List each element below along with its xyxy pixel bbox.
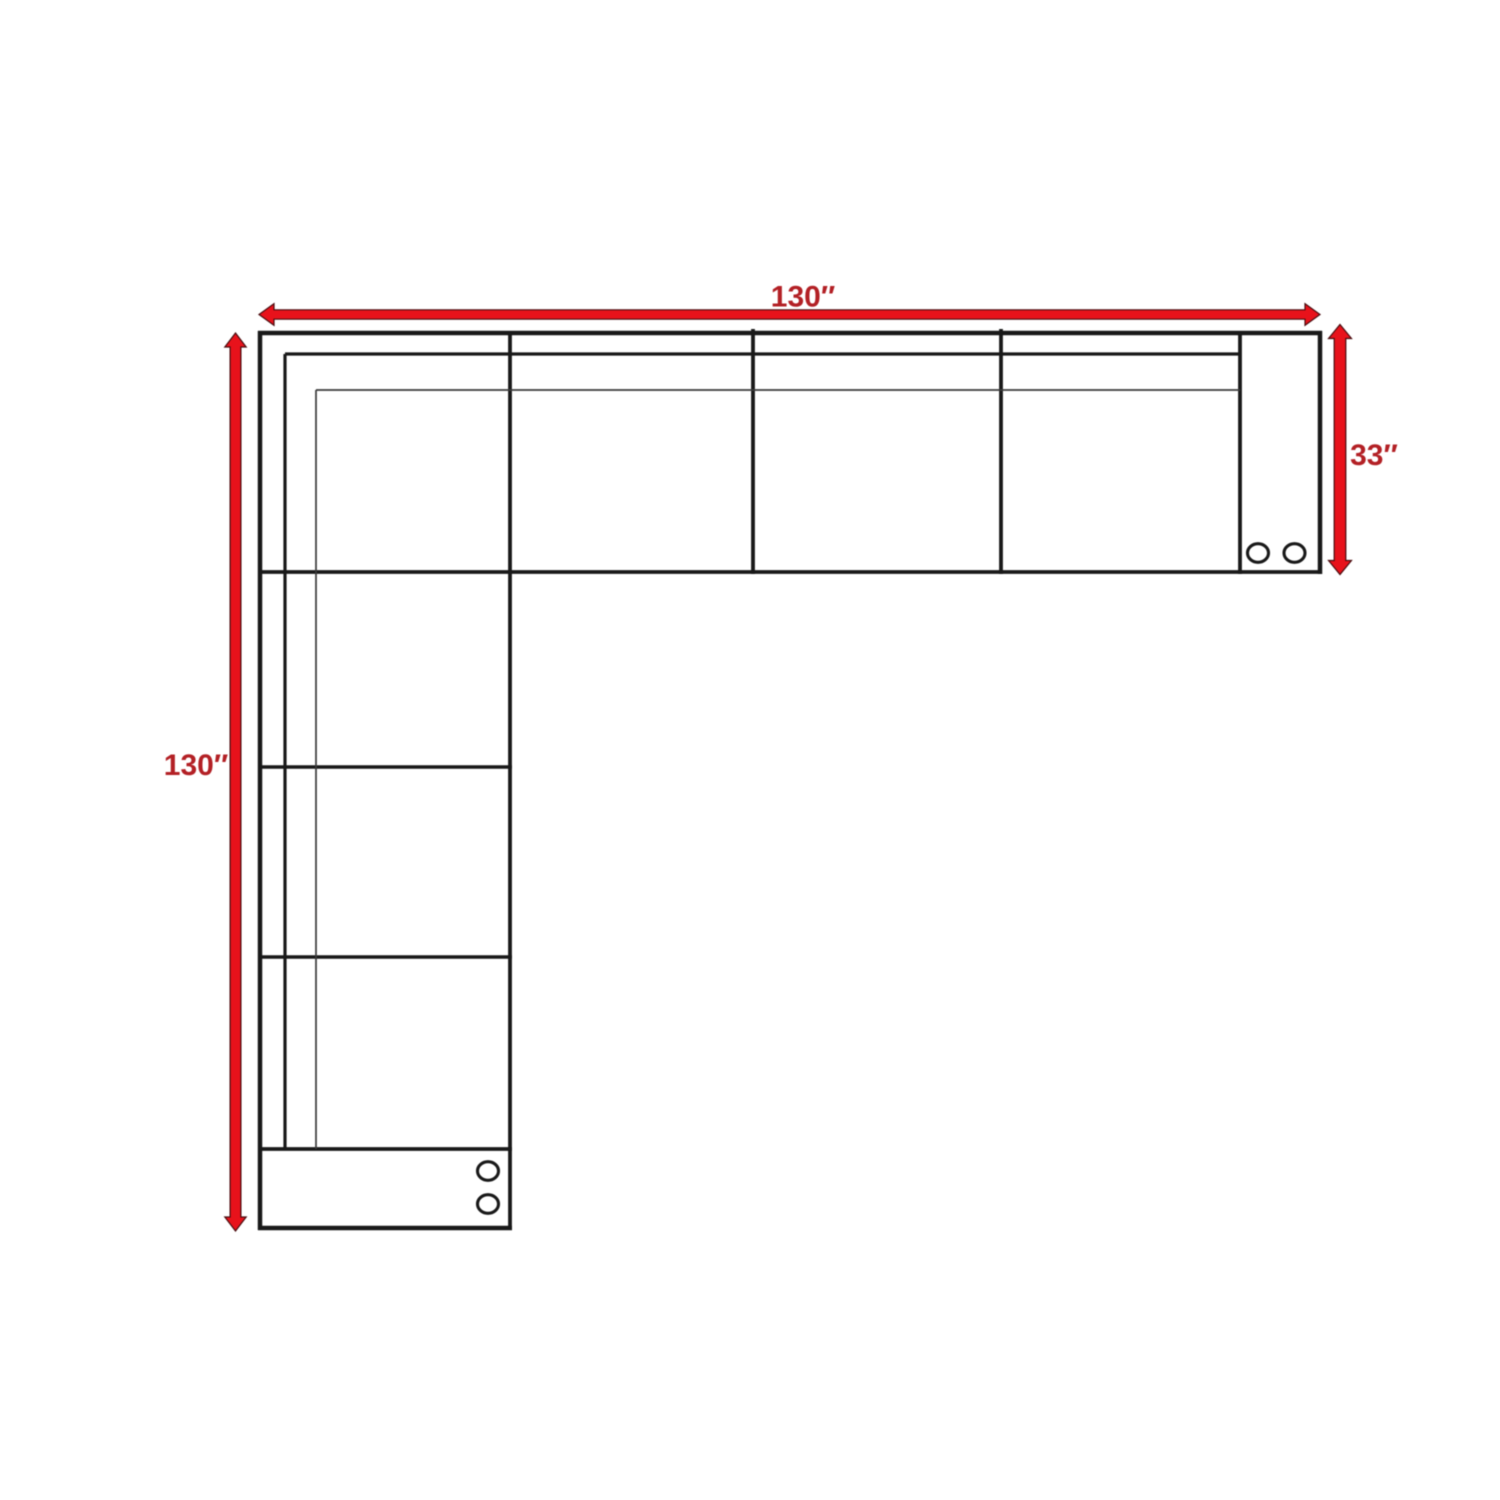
svg-text:130″: 130″ [771, 281, 835, 314]
svg-text:33″: 33″ [1350, 439, 1398, 472]
svg-text:130″: 130″ [164, 749, 228, 782]
